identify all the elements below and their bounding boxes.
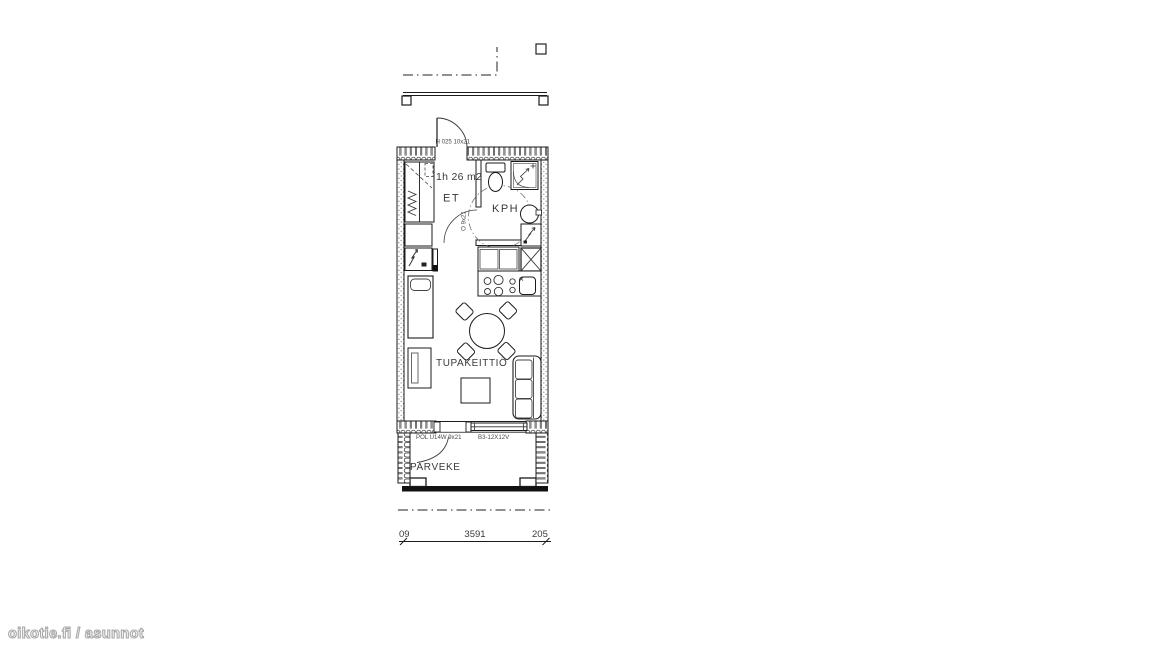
shower [511,162,538,190]
bathroom-door-code: O 9x21 [461,211,468,231]
watermark: oikotie.fi / asunnot [8,626,144,642]
upper-property-line [403,44,546,75]
coffee-table [461,378,490,403]
door-jamb [466,422,471,432]
entrance-door: H 025 10x21 [436,118,471,148]
left-wall [397,147,404,433]
balcony-door-code: POL U14W 9x21 [416,434,462,441]
kitchen-cabinets [478,247,519,271]
bottom-wall-right [526,421,548,433]
room-label-kph: KPH [492,203,519,215]
right-wall [541,147,548,421]
railing-post [520,478,536,487]
dimension-line: 09 3591 205 [399,529,551,545]
ventilation-shaft [521,248,541,271]
window [471,423,527,431]
balcony: PARVEKE [398,433,548,492]
apartment-size-label: 1h 26 m2 [436,171,482,183]
railing-post [410,478,426,487]
upper-balcony-railing [402,93,548,106]
shelf-bench [408,348,431,388]
dining-table [470,314,505,349]
hall-closets [405,162,438,271]
room-label-tupakeittio: TUPAKEITTIÖ [436,357,507,369]
chair [455,302,474,321]
top-wall-left [397,147,435,160]
chair [498,301,517,320]
sofa [513,356,541,419]
window-code: B3-12X12V [478,434,510,441]
door-jamb [434,422,440,432]
dimension-middle: 3591 [464,529,485,540]
bed [408,276,433,338]
top-wall-right [467,147,548,160]
dining-set [455,301,518,361]
toilet [486,163,505,192]
living-room [408,276,541,419]
bottom-wall-left [397,421,436,433]
balcony-wall-left [398,433,410,483]
dimension-right: 205 [532,529,548,540]
dimension-left: 09 [399,529,410,540]
bathroom-wall-vertical [476,160,481,207]
room-label-parveke: PARVEKE [410,462,461,473]
wardrobe [405,162,434,222]
floor-plan-drawing: H 025 10x21 [0,0,1152,648]
room-label-et: ET [443,193,460,205]
electrical-cabinet [405,248,432,271]
floorplan-canvas: H 025 10x21 [0,0,1152,648]
cabinet [405,224,432,246]
entrance-door-code: H 025 10x21 [436,139,471,146]
riser-shaft [521,224,541,246]
balcony-wall-right [536,433,548,483]
column-marker [536,44,546,54]
wash-basin [521,205,542,223]
